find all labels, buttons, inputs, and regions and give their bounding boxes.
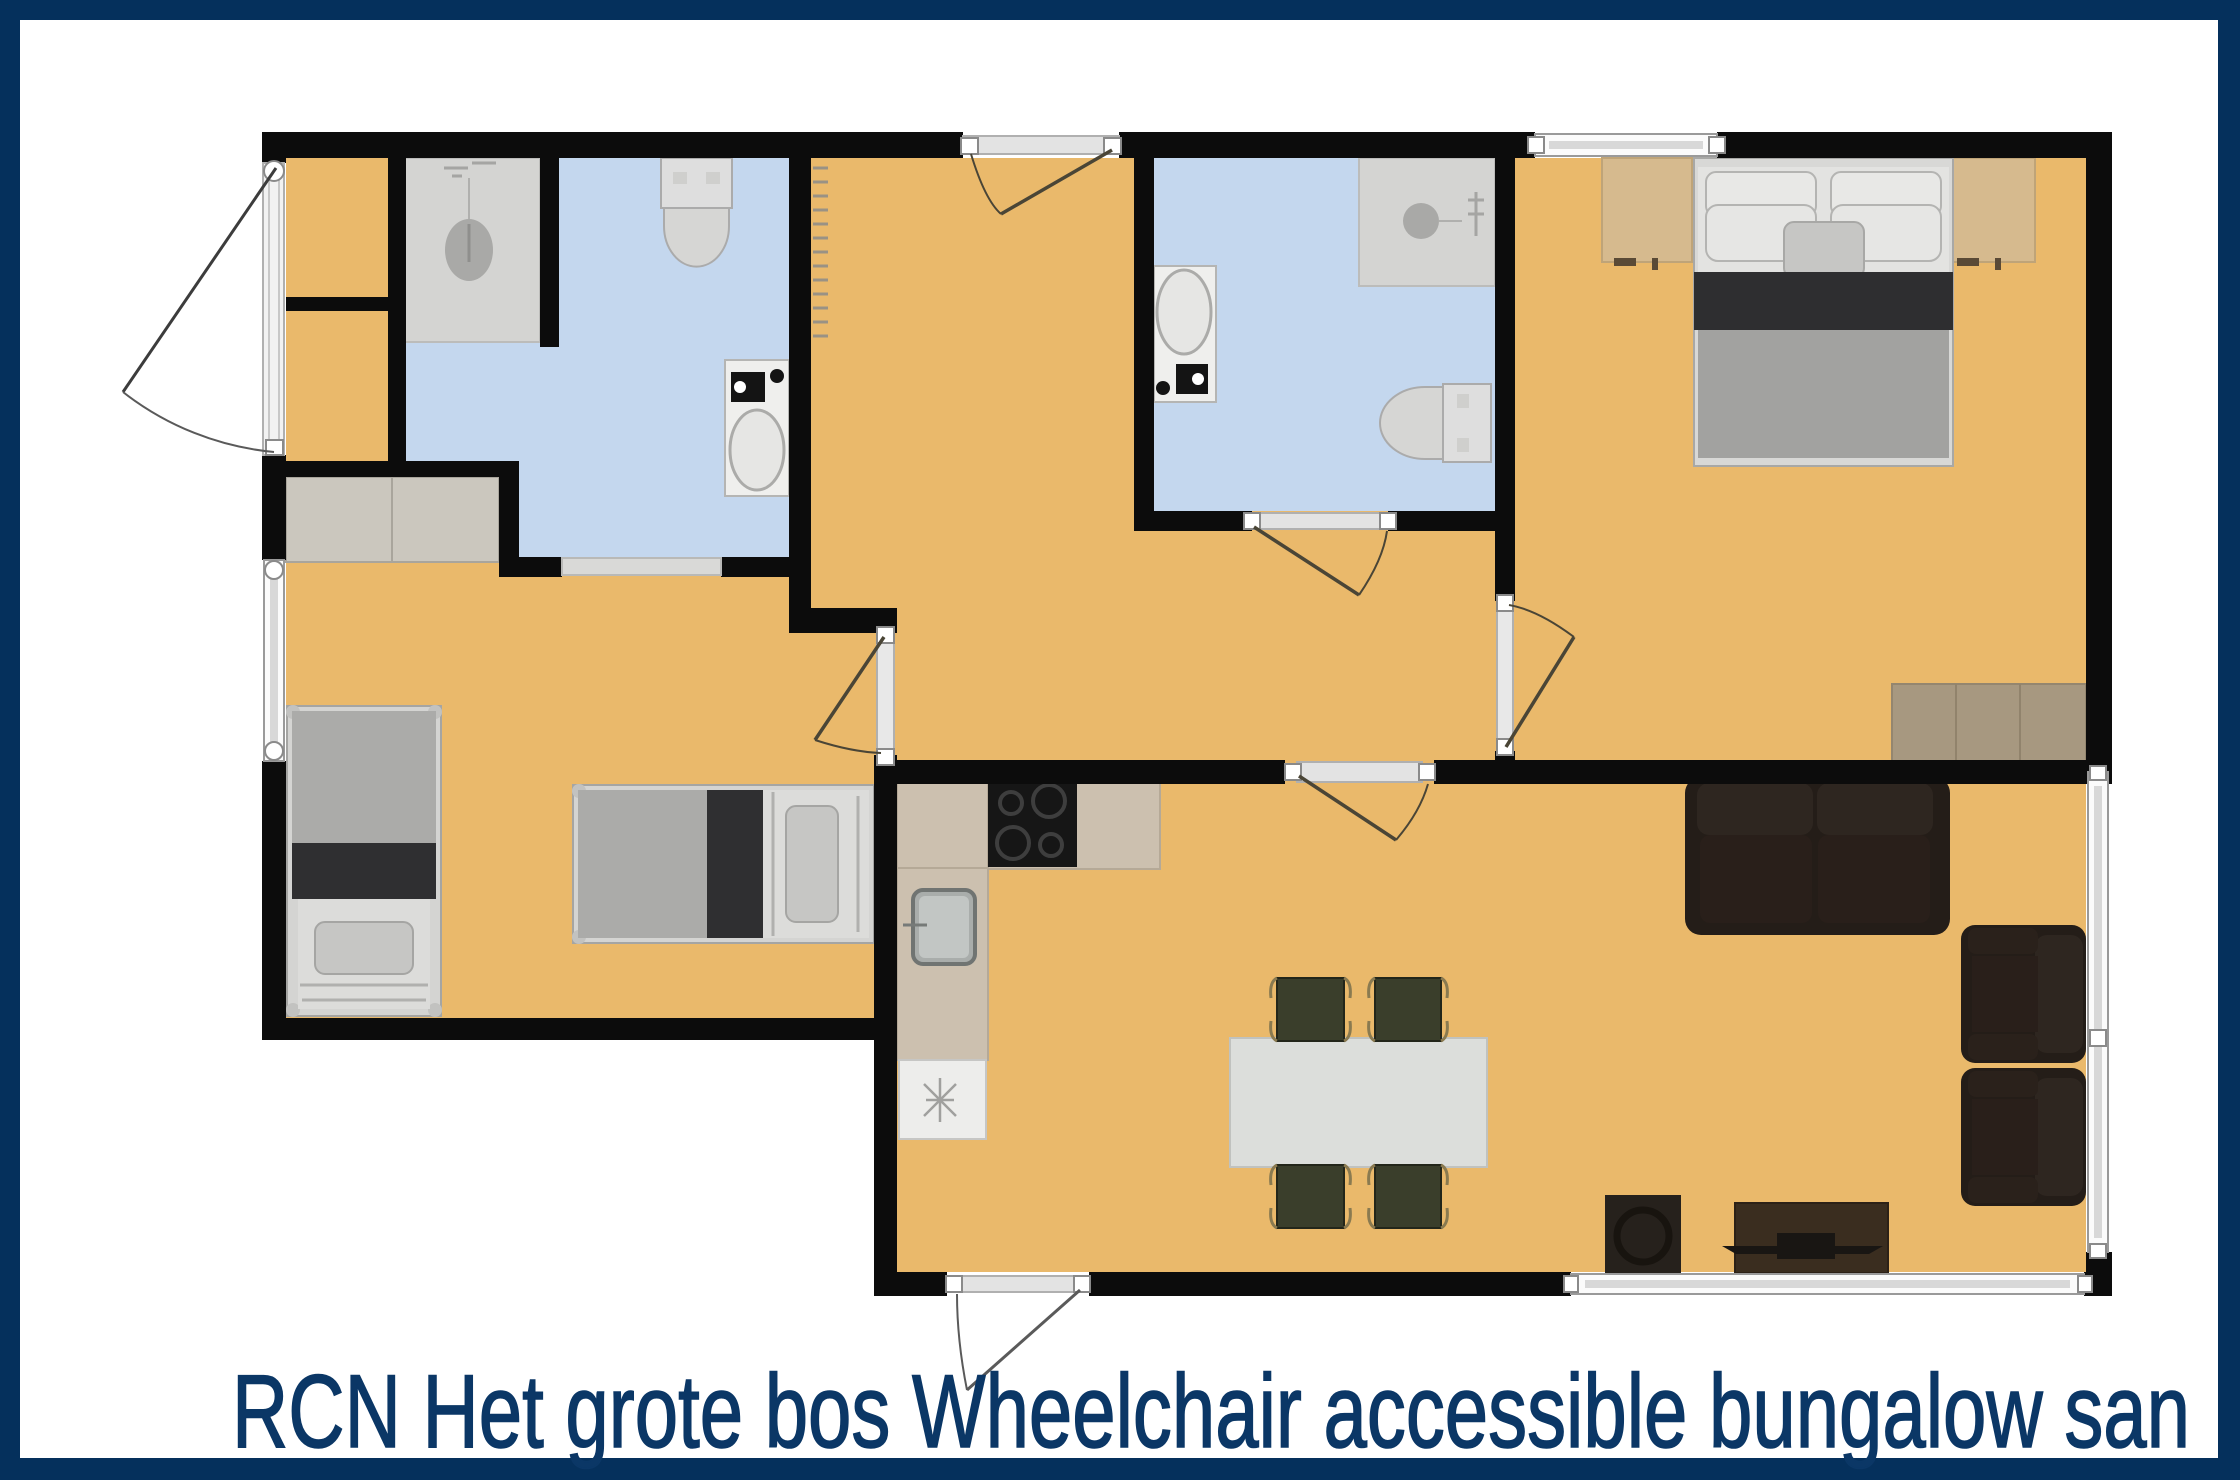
svg-text:RCN Het grote bos Wheelchair a: RCN Het grote bos Wheelchair accessible … xyxy=(232,1354,2190,1470)
